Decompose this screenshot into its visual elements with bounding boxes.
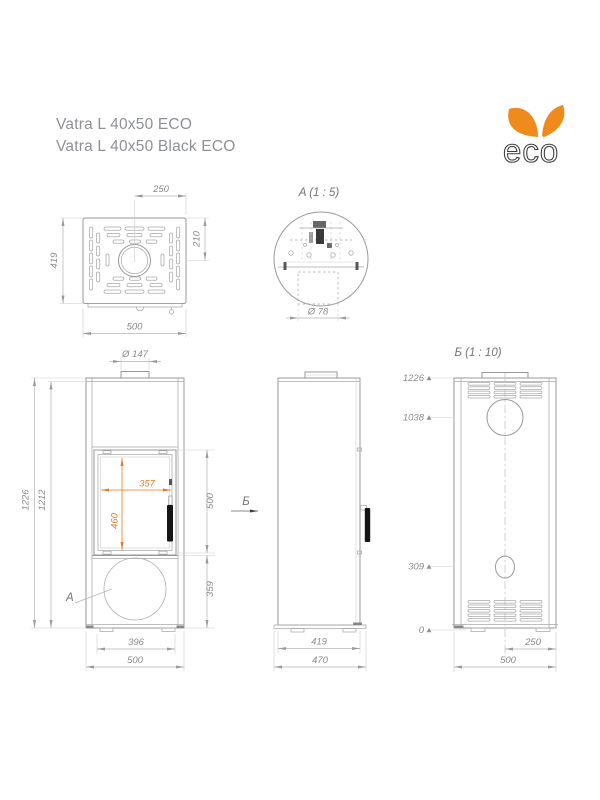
dim-front-glass-height: 460 bbox=[110, 512, 121, 529]
front-trim-bar bbox=[88, 304, 182, 308]
dim-side-depth-total: 470 bbox=[312, 655, 329, 666]
detail-a-view: A (1 : 5) bbox=[274, 187, 368, 321]
door-glass bbox=[98, 455, 172, 551]
dim-top-depth: 419 bbox=[49, 252, 60, 269]
door-knob bbox=[136, 307, 144, 311]
back-view-title: Б (1 : 10) bbox=[454, 347, 501, 359]
detail-a-title: A (1 : 5) bbox=[298, 187, 340, 199]
flue-collar bbox=[121, 372, 149, 379]
base-panel-circle bbox=[104, 558, 166, 620]
side-view: Б 419 470 bbox=[231, 372, 370, 671]
front-view: A Ø 147 1226 1212 500 359 bbox=[21, 349, 217, 671]
dim-detail-diameter: Ø 78 bbox=[307, 307, 329, 318]
damper-pull-ring bbox=[169, 310, 173, 314]
dim-top-flue-offset: 250 bbox=[152, 184, 170, 195]
elevation-flue: 1038 bbox=[403, 413, 425, 424]
elevation-top: 1226 bbox=[403, 373, 425, 384]
dim-back-flue-offset: 250 bbox=[524, 637, 542, 648]
technical-drawing: eco bbox=[0, 0, 600, 800]
door-handle bbox=[167, 505, 173, 542]
dim-front-height-body: 1212 bbox=[37, 489, 48, 511]
dim-front-glass-width: 357 bbox=[139, 479, 156, 490]
front-right-foot bbox=[162, 628, 175, 632]
side-right-foot bbox=[343, 629, 356, 633]
dim-front-base-height: 359 bbox=[205, 580, 216, 597]
eco-logo-text: eco bbox=[503, 132, 559, 169]
back-view: Б (1 : 10) bbox=[403, 347, 558, 672]
door-latch bbox=[169, 479, 172, 485]
door-frame bbox=[94, 450, 176, 555]
dim-top-width: 500 bbox=[127, 322, 144, 333]
drawing-sheet: Vatra L 40x50 ECO Vatra L 40x50 Black EC… bbox=[0, 0, 600, 800]
view-direction-label: Б bbox=[242, 496, 250, 508]
side-base-plate bbox=[274, 625, 366, 629]
dim-back-width: 500 bbox=[500, 655, 517, 666]
detail-a-mechanism bbox=[278, 221, 364, 304]
dim-top-flue-from-front: 210 bbox=[192, 230, 203, 248]
dim-front-height-total: 1226 bbox=[21, 489, 32, 511]
back-right-foot bbox=[536, 628, 550, 632]
side-door-handle bbox=[365, 508, 370, 542]
elevation-inlet: 309 bbox=[408, 562, 425, 573]
dim-front-collar: Ø 147 bbox=[121, 349, 149, 360]
dim-front-width: 500 bbox=[127, 655, 144, 666]
side-body-outline bbox=[278, 378, 360, 625]
eco-logo: eco bbox=[503, 105, 564, 169]
back-left-foot bbox=[471, 628, 485, 632]
top-view: 250 419 210 500 bbox=[49, 184, 209, 337]
dim-side-depth-body: 419 bbox=[311, 637, 328, 648]
elevation-floor: 0 bbox=[419, 625, 425, 636]
dim-front-door-height: 500 bbox=[205, 492, 216, 509]
front-left-foot bbox=[100, 628, 113, 632]
side-left-foot bbox=[291, 629, 304, 633]
detail-a-callout: A bbox=[65, 592, 74, 604]
back-elevation-dims: 1226 1038 309 0 bbox=[403, 373, 466, 636]
dim-front-feet-width: 396 bbox=[128, 637, 145, 648]
